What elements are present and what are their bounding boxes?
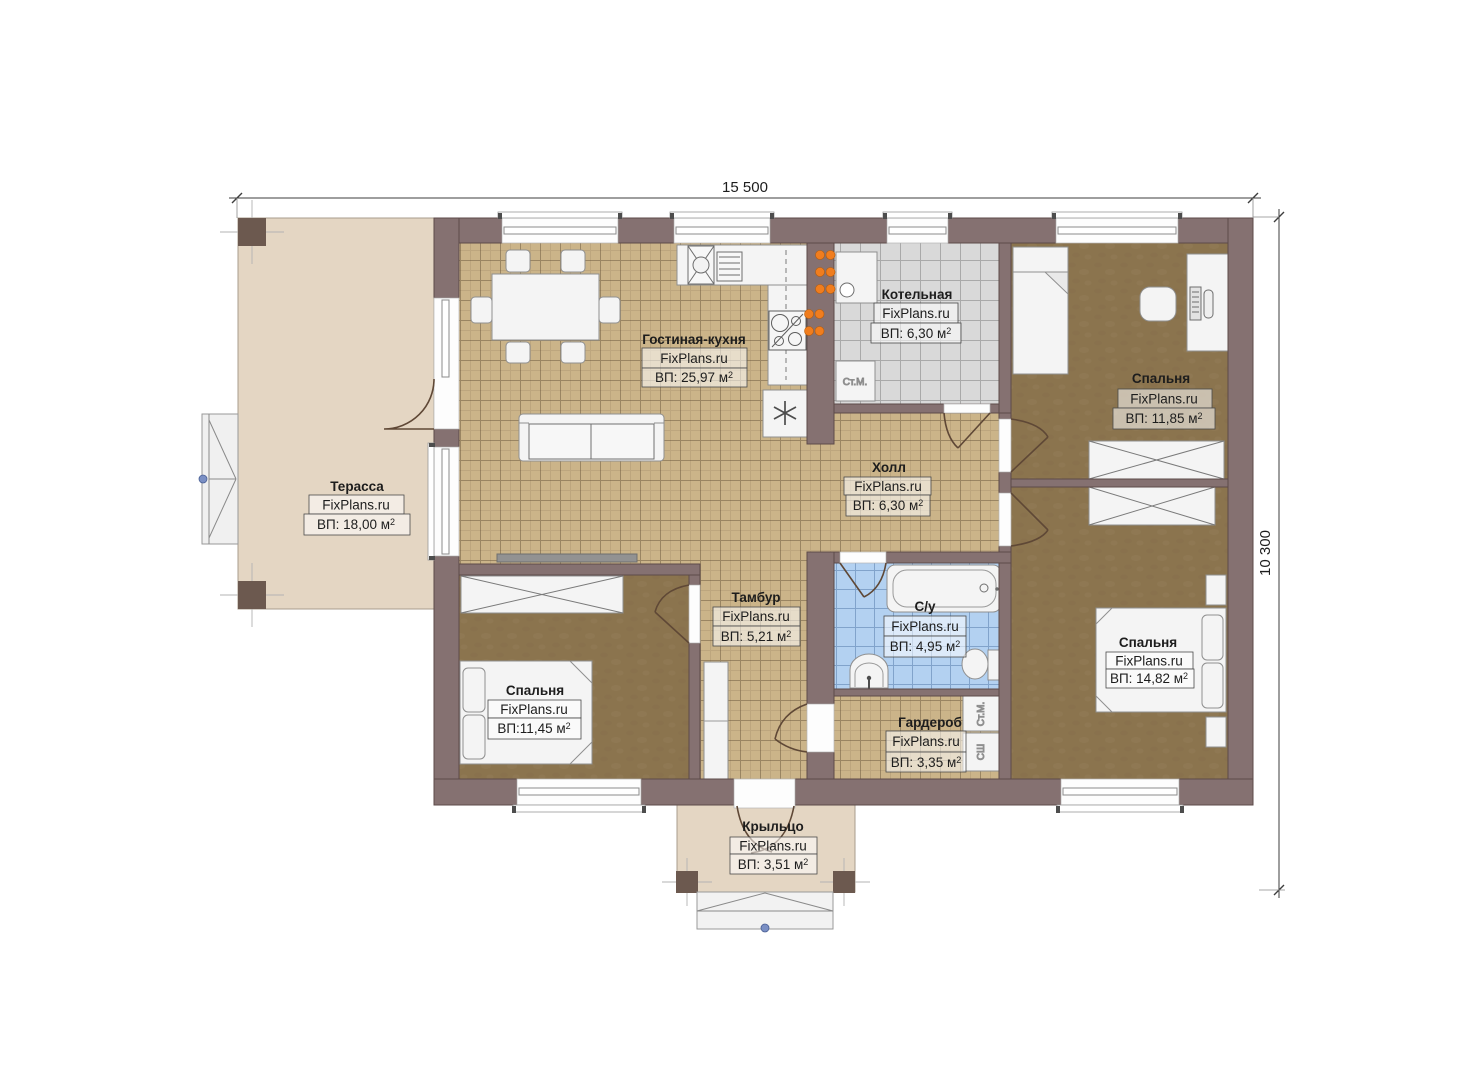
- svg-text:FixPlans.ru: FixPlans.ru: [660, 351, 728, 366]
- svg-text:ВП: 6,30 м2: ВП: 6,30 м2: [853, 498, 924, 513]
- svg-text:FixPlans.ru: FixPlans.ru: [892, 734, 960, 749]
- svg-text:Спальня: Спальня: [1132, 371, 1190, 386]
- svg-text:FixPlans.ru: FixPlans.ru: [1115, 654, 1183, 669]
- svg-text:ВП: 5,21 м2: ВП: 5,21 м2: [721, 629, 792, 644]
- svg-text:Котельная: Котельная: [882, 287, 953, 302]
- svg-text:FixPlans.ru: FixPlans.ru: [739, 839, 807, 854]
- svg-text:15 500: 15 500: [722, 179, 768, 196]
- svg-text:FixPlans.ru: FixPlans.ru: [891, 619, 959, 634]
- svg-text:ВП: 25,97 м2: ВП: 25,97 м2: [655, 370, 733, 385]
- svg-text:Тамбур: Тамбур: [732, 590, 781, 605]
- svg-text:FixPlans.ru: FixPlans.ru: [500, 702, 568, 717]
- svg-text:СШ: СШ: [976, 744, 987, 760]
- svg-text:Ст.М.: Ст.М.: [843, 377, 868, 388]
- svg-text:FixPlans.ru: FixPlans.ru: [882, 306, 950, 321]
- svg-text:ВП:11,45 м2: ВП:11,45 м2: [497, 721, 570, 736]
- svg-text:10 300: 10 300: [1257, 530, 1274, 576]
- svg-text:ВП: 14,82 м2: ВП: 14,82 м2: [1110, 671, 1188, 686]
- svg-text:ВП: 11,85 м2: ВП: 11,85 м2: [1125, 411, 1202, 426]
- svg-text:Терасса: Терасса: [330, 479, 384, 494]
- svg-text:Спальня: Спальня: [506, 683, 564, 698]
- svg-text:ВП: 6,30 м2: ВП: 6,30 м2: [881, 326, 952, 341]
- svg-text:ВП: 18,00 м2: ВП: 18,00 м2: [317, 517, 395, 532]
- svg-text:ВП: 4,95 м2: ВП: 4,95 м2: [890, 639, 961, 654]
- svg-text:С/у: С/у: [914, 599, 936, 614]
- svg-text:FixPlans.ru: FixPlans.ru: [322, 498, 390, 513]
- svg-text:Холл: Холл: [872, 460, 906, 475]
- svg-text:Гардероб: Гардероб: [898, 715, 962, 730]
- svg-text:Ст.М.: Ст.М.: [976, 702, 987, 727]
- svg-text:FixPlans.ru: FixPlans.ru: [854, 479, 922, 494]
- svg-text:Спальня: Спальня: [1119, 635, 1177, 650]
- svg-text:FixPlans.ru: FixPlans.ru: [1130, 392, 1198, 407]
- svg-text:ВП: 3,51 м2: ВП: 3,51 м2: [738, 857, 809, 872]
- svg-text:ВП: 3,35 м2: ВП: 3,35 м2: [891, 755, 962, 770]
- svg-text:Гостиная-кухня: Гостиная-кухня: [642, 332, 745, 347]
- svg-text:Крыльцо: Крыльцо: [742, 819, 803, 834]
- svg-text:FixPlans.ru: FixPlans.ru: [722, 609, 790, 624]
